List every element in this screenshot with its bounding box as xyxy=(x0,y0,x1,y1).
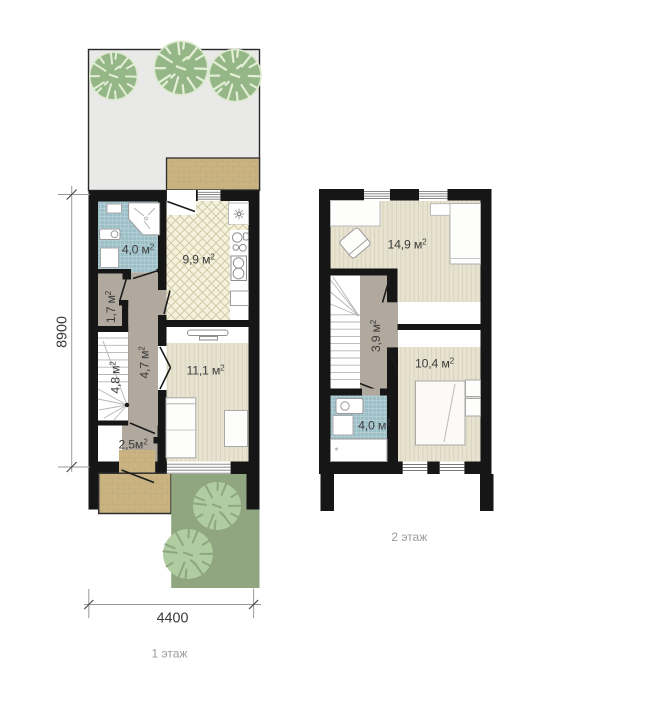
svg-text:10,4 м2: 10,4 м2 xyxy=(415,357,455,371)
svg-text:11,1 м2: 11,1 м2 xyxy=(186,364,225,378)
svg-text:2 этаж: 2 этаж xyxy=(391,530,427,544)
svg-text:14,9 м2: 14,9 м2 xyxy=(388,238,428,252)
svg-text:8900: 8900 xyxy=(54,316,70,348)
svg-text:4400: 4400 xyxy=(157,611,189,627)
svg-text:1 этаж: 1 этаж xyxy=(152,647,188,661)
